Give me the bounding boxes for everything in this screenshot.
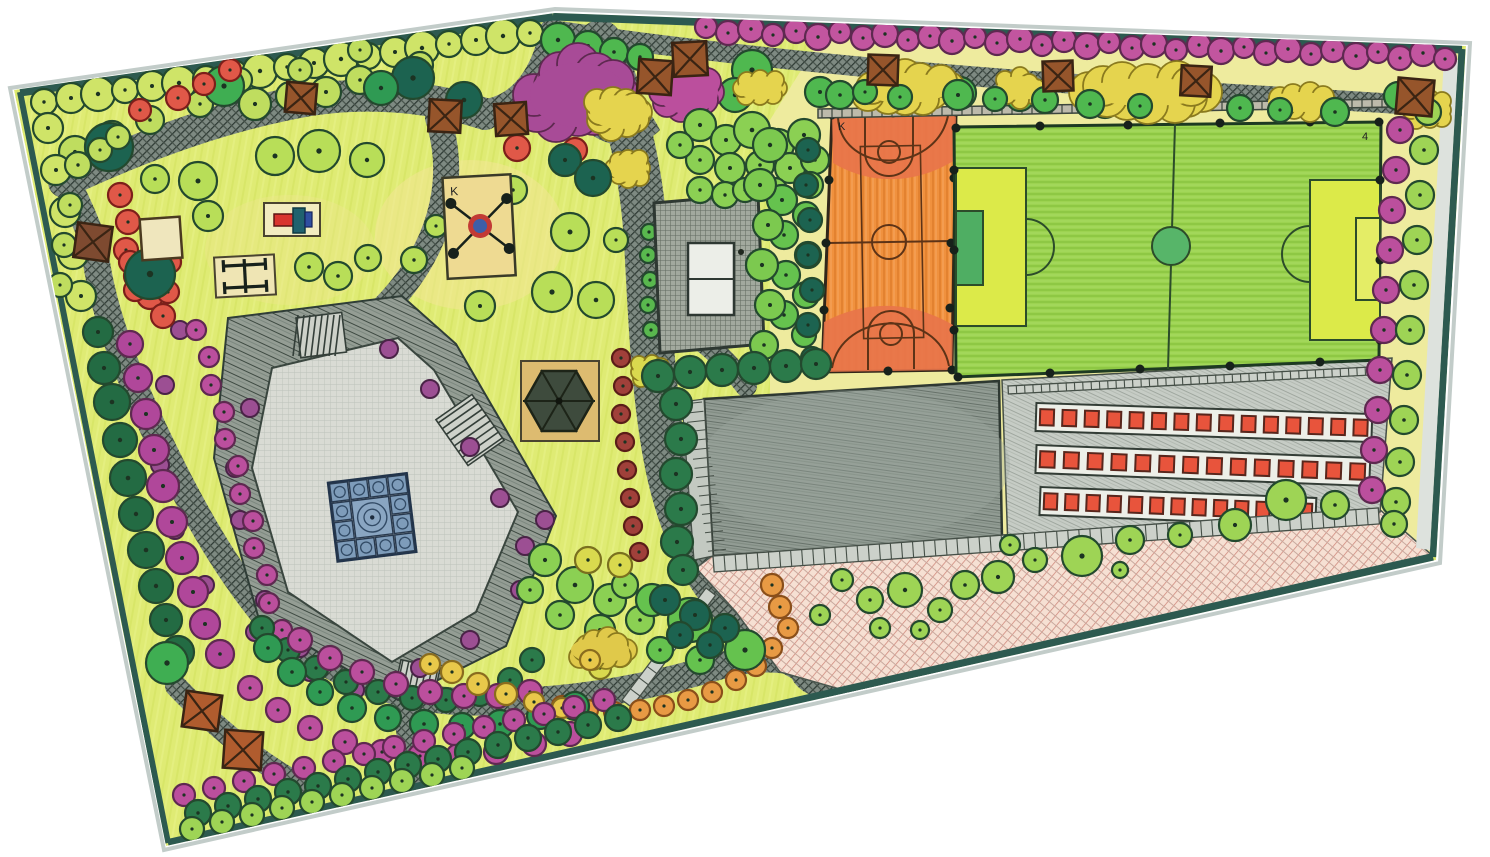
svg-text:K: K (450, 184, 459, 198)
svg-text:4: 4 (1362, 131, 1368, 143)
svg-text:K: K (838, 121, 846, 133)
